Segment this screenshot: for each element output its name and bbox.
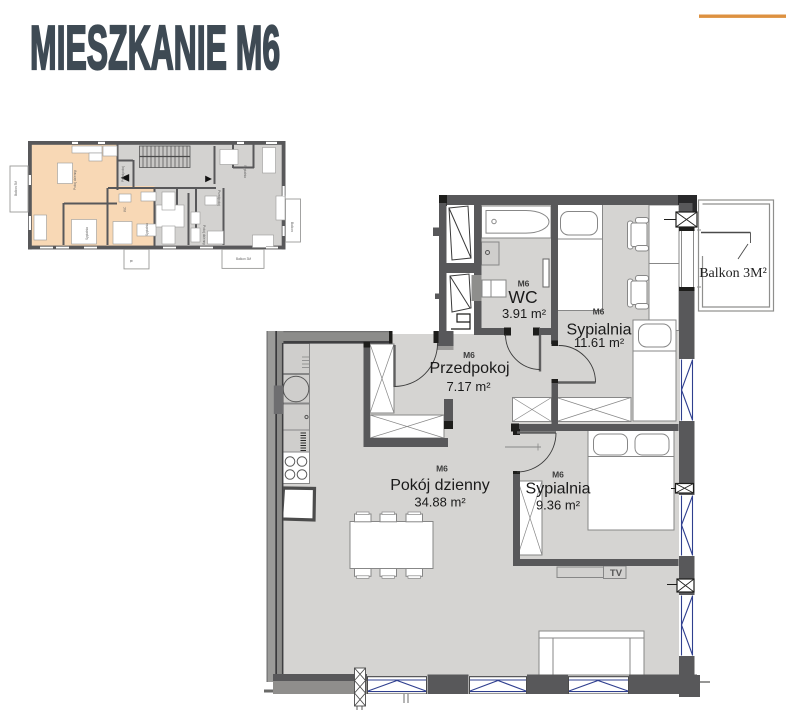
svg-text:Pokój dzienny: Pokój dzienny bbox=[390, 477, 490, 494]
svg-text:7.17 m²: 7.17 m² bbox=[446, 379, 491, 394]
svg-text:Sypialnia: Sypialnia bbox=[145, 223, 149, 236]
svg-text:Sypialnia: Sypialnia bbox=[243, 165, 247, 178]
svg-text:Przedpokoj: Przedpokoj bbox=[121, 166, 125, 182]
svg-text:Balkon 3M: Balkon 3M bbox=[236, 257, 251, 261]
svg-text:Pokoj dzienny: Pokoj dzienny bbox=[202, 225, 206, 245]
svg-text:3.91 m²: 3.91 m² bbox=[502, 306, 547, 321]
svg-text:Balkon 3M²: Balkon 3M² bbox=[699, 266, 767, 281]
svg-text:Sypialnia: Sypialnia bbox=[85, 227, 89, 240]
svg-text:M6: M6 bbox=[436, 464, 448, 474]
svg-text:B.: B. bbox=[129, 260, 133, 263]
svg-text:WC: WC bbox=[508, 287, 537, 307]
svg-text:M6: M6 bbox=[593, 307, 605, 317]
svg-text:Przedpokoj: Przedpokoj bbox=[429, 360, 509, 377]
svg-text:M6: M6 bbox=[463, 350, 475, 360]
svg-text:9.36 m²: 9.36 m² bbox=[536, 498, 581, 513]
svg-text:Przedpokoj: Przedpokoj bbox=[217, 190, 221, 206]
svg-text:WC: WC bbox=[123, 206, 127, 212]
svg-text:Balkon 3M: Balkon 3M bbox=[14, 181, 18, 196]
svg-text:TV: TV bbox=[610, 568, 623, 579]
svg-text:M6: M6 bbox=[552, 470, 564, 480]
svg-text:34.88 m²: 34.88 m² bbox=[414, 495, 466, 510]
svg-text:Sypialnia: Sypialnia bbox=[526, 481, 591, 498]
svg-text:11.61 m²: 11.61 m² bbox=[574, 335, 625, 350]
svg-text:Pokoj dzienny: Pokoj dzienny bbox=[73, 170, 77, 190]
svg-text:Balkon: Balkon bbox=[290, 222, 294, 232]
